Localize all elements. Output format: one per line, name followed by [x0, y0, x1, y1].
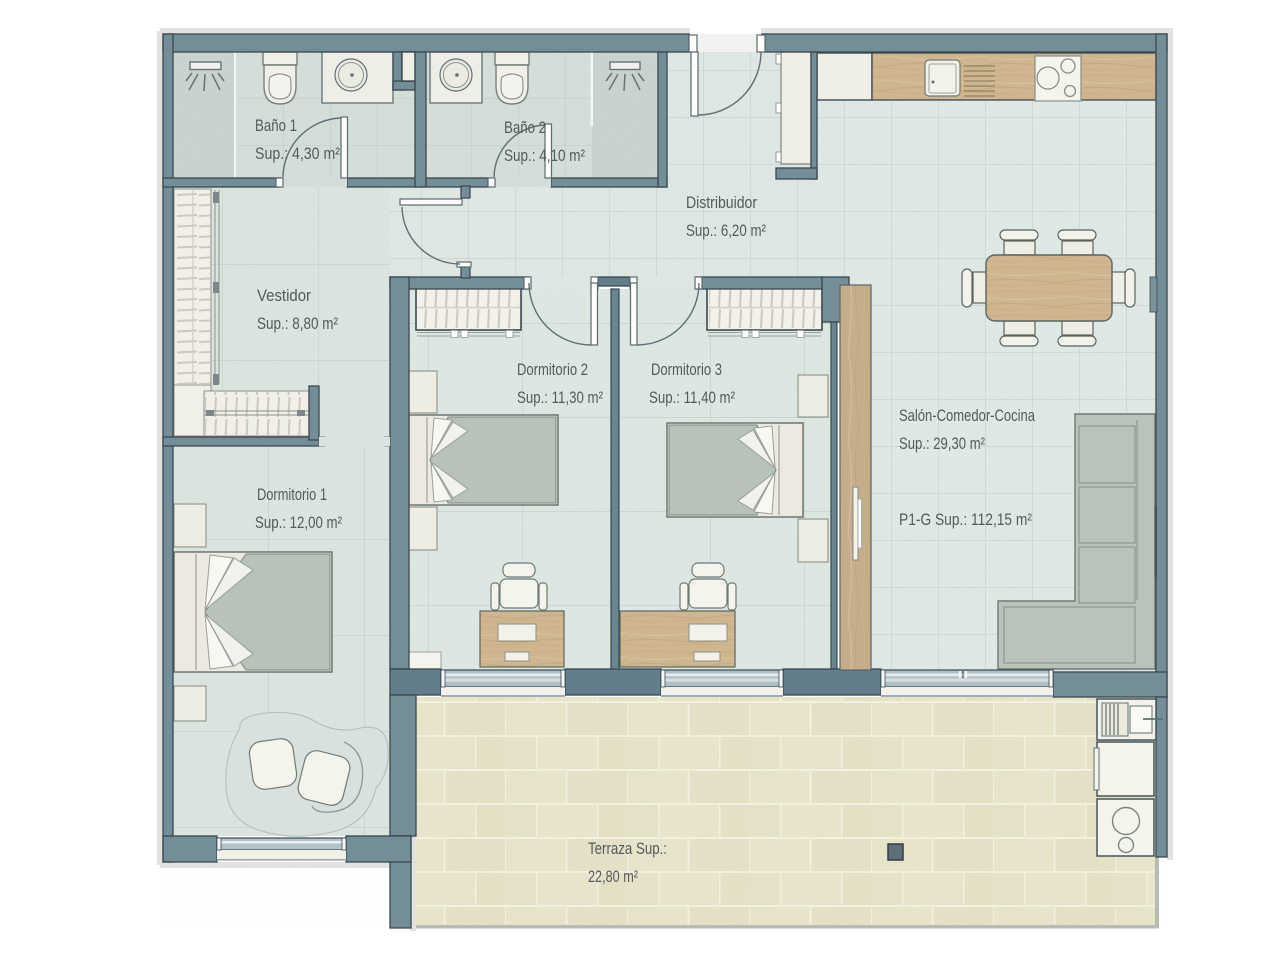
- svg-text:Dormitorio 1: Dormitorio 1: [257, 485, 327, 504]
- svg-text:Dormitorio 2: Dormitorio 2: [517, 360, 588, 379]
- svg-text:Baño 1: Baño 1: [255, 116, 297, 135]
- svg-text:Baño 2: Baño 2: [504, 118, 546, 137]
- svg-text:Sup.: 6,20 m²: Sup.: 6,20 m²: [686, 221, 766, 240]
- svg-text:P1-G Sup.: 112,15 m²: P1-G Sup.: 112,15 m²: [899, 510, 1032, 529]
- svg-text:Sup.: 11,30 m²: Sup.: 11,30 m²: [517, 388, 603, 407]
- svg-text:Sup.: 12,00 m²: Sup.: 12,00 m²: [255, 513, 342, 532]
- svg-text:Sup.: 4,10 m²: Sup.: 4,10 m²: [504, 146, 585, 165]
- svg-text:Distribuidor: Distribuidor: [686, 193, 757, 212]
- svg-text:Sup.: 4,30 m²: Sup.: 4,30 m²: [255, 144, 340, 163]
- svg-text:Sup.: 11,40 m²: Sup.: 11,40 m²: [649, 388, 735, 407]
- svg-text:Sup.: 29,30 m²: Sup.: 29,30 m²: [899, 434, 985, 453]
- svg-text:Terraza Sup.:: Terraza Sup.:: [588, 839, 667, 858]
- svg-text:Dormitorio 3: Dormitorio 3: [651, 360, 722, 379]
- svg-text:22,80 m²: 22,80 m²: [588, 867, 638, 886]
- svg-text:Sup.: 8,80 m²: Sup.: 8,80 m²: [257, 314, 338, 333]
- svg-text:Salón-Comedor-Cocina: Salón-Comedor-Cocina: [899, 406, 1035, 425]
- svg-text:Vestidor: Vestidor: [257, 286, 311, 305]
